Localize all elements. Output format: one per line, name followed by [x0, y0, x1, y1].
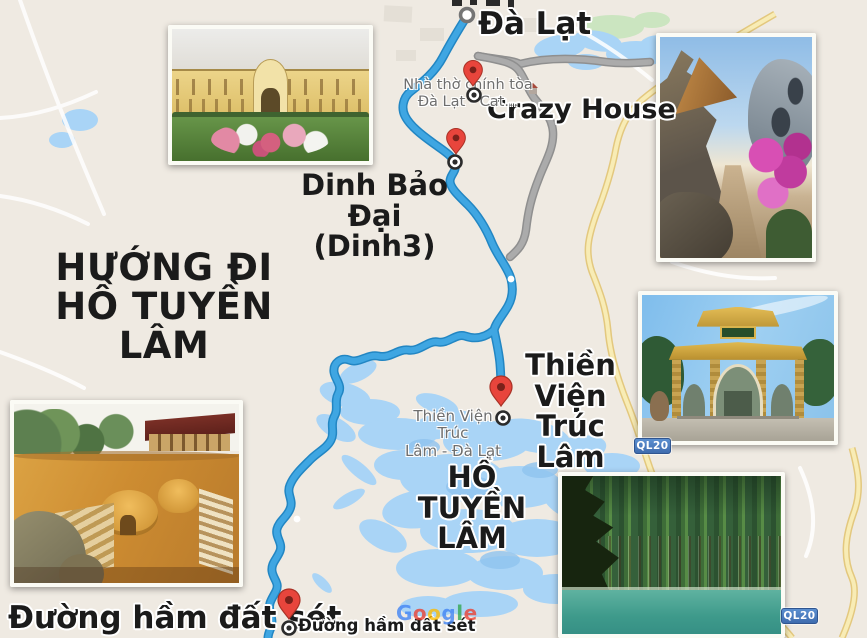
google-watermark: Google	[396, 601, 478, 625]
route-shield-ql20: QL20	[634, 438, 671, 454]
route-map-collage: Đà Lạt Crazy House Dinh Bảo Đại (Dinh3) …	[0, 0, 867, 638]
page-title: HƯỚNG ĐI HỒ TUYỀN LÂM	[8, 248, 320, 366]
clay-tunnel-label: Đường hầm đất sét	[8, 602, 342, 635]
lake-label-line1: HỒ	[392, 462, 552, 493]
lake-label-line2: TUYỀN LÂM	[392, 493, 552, 554]
heading-line2: HỒ TUYỀN LÂM	[8, 287, 320, 365]
heading-line1: HƯỚNG ĐI	[8, 248, 320, 287]
photo-crazy-house	[656, 33, 816, 262]
route-waypoint-dot	[508, 276, 515, 283]
cropped-map-label-fragment	[452, 0, 462, 6]
poi-thien-vien-label: Thiền Viện Trúc Lâm - Đà Lạt	[396, 408, 510, 460]
lake-label: HỒ TUYỀN LÂM	[392, 462, 552, 554]
photo-tuyen-lam-lake	[558, 472, 785, 638]
photo-thien-vien-gate	[638, 291, 838, 445]
city-label-da-lat: Đà Lạt	[478, 8, 591, 41]
route-waypoint-dot	[294, 516, 301, 523]
poi-thien-vien-line2: Lâm - Đà Lạt	[396, 443, 510, 460]
dinh-bao-dai-line1: Dinh Bảo Đại	[282, 170, 467, 231]
thien-vien-label: Thiền Viện Trúc Lâm	[503, 350, 638, 473]
photo-clay-tunnel	[10, 400, 243, 587]
poi-thien-vien-line1: Thiền Viện Trúc	[396, 408, 510, 443]
photo-dinh-bao-dai-palace	[168, 25, 373, 165]
poi-cathedral-line1: Nhà thờ chính tòa	[402, 77, 534, 94]
thien-vien-line1: Thiền Viện	[503, 350, 638, 411]
poi-cathedral-label: Nhà thờ chính tòa Đà Lạt - Cat...	[402, 77, 534, 110]
route-shield-ql20: QL20	[781, 608, 818, 624]
cropped-map-label-fragment	[470, 0, 477, 5]
poi-cathedral-line2: Đà Lạt - Cat...	[402, 94, 534, 111]
